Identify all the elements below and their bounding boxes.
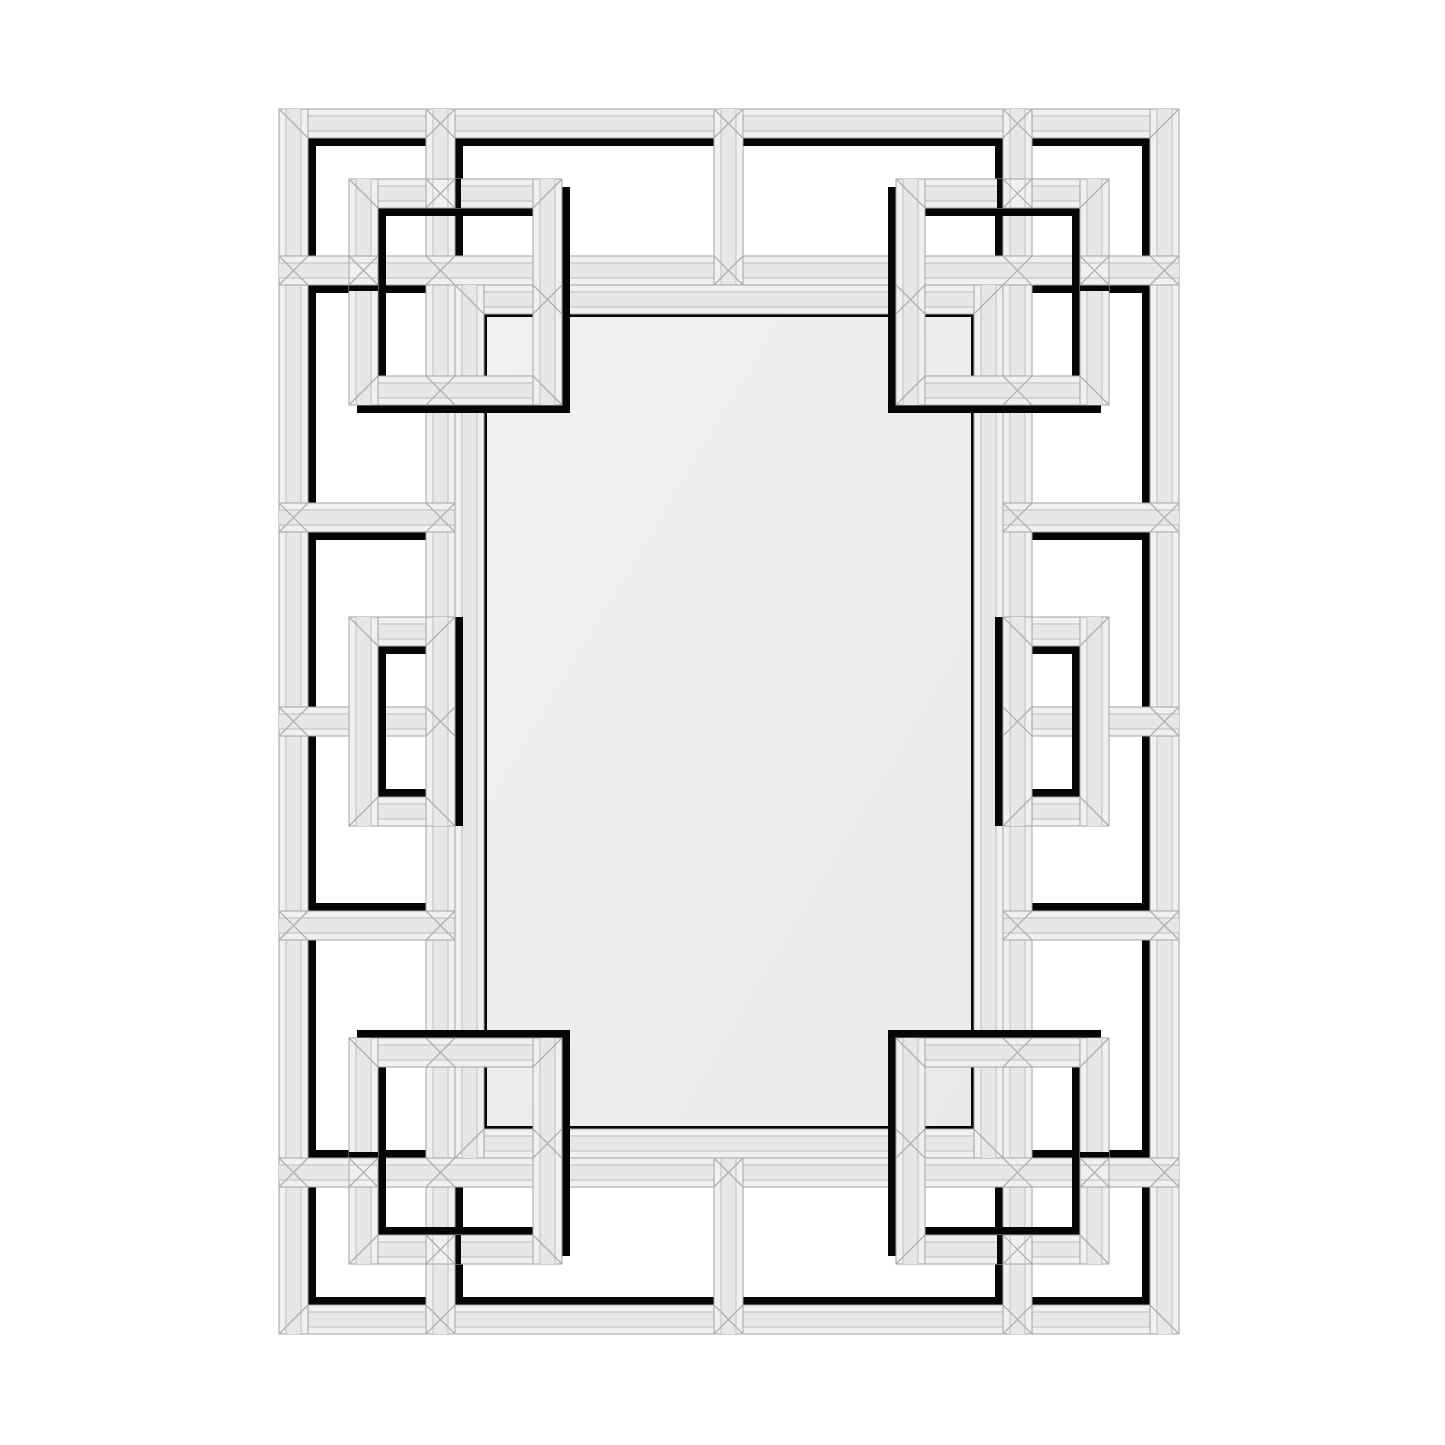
strip-core: [356, 1038, 371, 1264]
mirror-glass: [484, 314, 974, 1129]
strip-core: [896, 383, 1109, 398]
strip-core: [1003, 510, 1179, 525]
strip-core: [279, 510, 455, 525]
strip-core: [462, 285, 477, 1158]
strip-core: [356, 179, 371, 405]
strip-core: [1087, 617, 1102, 826]
strip-core: [903, 179, 918, 405]
strip-core: [1087, 179, 1102, 405]
strip-core: [1003, 918, 1179, 933]
mirror-product-render: [0, 0, 1445, 1445]
strip-core: [279, 918, 455, 933]
product-photo: [0, 0, 1445, 1445]
strip-core: [981, 285, 996, 1158]
strip-core: [721, 109, 736, 285]
strip-core: [1087, 1038, 1102, 1264]
strip-core: [349, 1045, 562, 1060]
strip-core: [349, 383, 562, 398]
strip-core: [721, 1158, 736, 1334]
strip-core: [540, 179, 555, 405]
strip-core: [356, 617, 371, 826]
strip-core: [540, 1038, 555, 1264]
strip-core: [896, 1045, 1109, 1060]
strip-core: [903, 1038, 918, 1264]
